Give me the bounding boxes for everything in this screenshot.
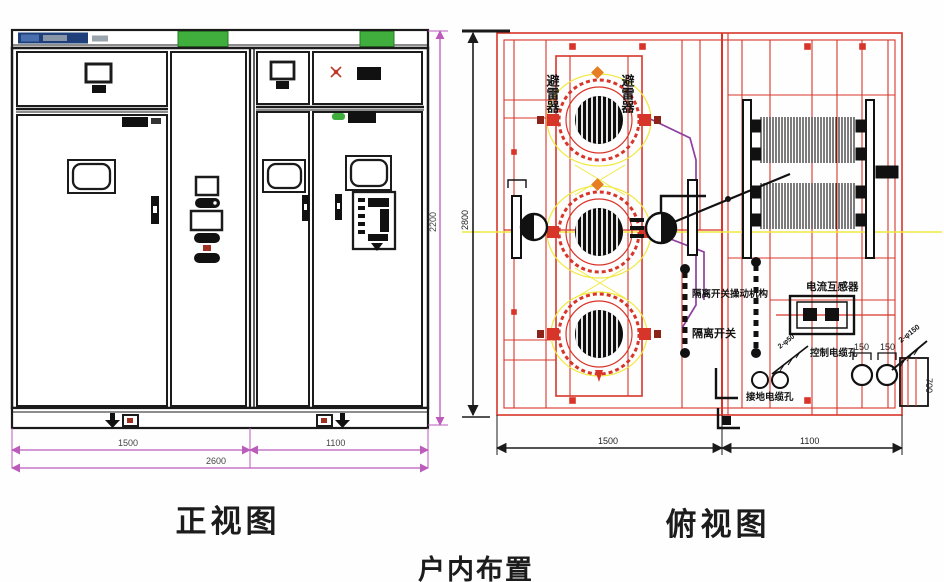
- hole-spec-large-label: 2-φ150: [897, 322, 922, 344]
- cabinet-top-strip: [12, 30, 428, 48]
- dim-front-left-width: 1500: [118, 438, 138, 448]
- plinth-socket-right: [317, 415, 332, 426]
- dim-front-right-width: 1100: [326, 438, 345, 448]
- door-handle-3[interactable]: [335, 194, 342, 220]
- hole-span-left: 150: [854, 342, 869, 352]
- arrester-label-right: 避雷器: [620, 73, 636, 114]
- cable-box-depth: 700: [924, 378, 934, 393]
- current-transformer-label: 电流互感器: [806, 280, 859, 293]
- green-chip: [332, 113, 345, 120]
- hole-spec-small-label: 2-φ50: [777, 333, 796, 350]
- mimic-panel: [353, 192, 395, 251]
- ground-cable-hole-label: 接地电缆孔: [746, 391, 794, 403]
- dim-top-left-width: 1500: [598, 436, 618, 446]
- dim-top-depth: 2800: [460, 210, 470, 230]
- plinth-socket-left: [123, 415, 138, 426]
- drawing-sheet: 1500 1100 2600 2200: [0, 0, 944, 582]
- dim-front-height: 2200: [428, 212, 438, 232]
- top-view-title: 俯视图: [618, 499, 818, 544]
- green-strip-left: [178, 32, 228, 47]
- front-view-drawing: 1500 1100 2600 2200: [0, 0, 472, 490]
- dim-top-right-width: 1100: [800, 436, 819, 446]
- door-label-chip: [122, 117, 148, 127]
- control-cable-hole-label: 控制电缆孔: [810, 347, 858, 359]
- door-handle[interactable]: [151, 196, 159, 224]
- green-strip-right: [360, 32, 394, 47]
- reactor-bank: [743, 100, 898, 258]
- hole-span-right: 150: [880, 342, 895, 352]
- arrester-label-left: 避雷器: [545, 73, 561, 114]
- dim-front-total-width: 2600: [206, 456, 226, 466]
- top-view-drawing: 避雷器 避雷器 隔离开关操动机构 隔离开关 电流互感器 控制电缆孔 接地电缆孔 …: [460, 0, 944, 490]
- door-handle-2[interactable]: [302, 195, 309, 221]
- sheet-caption: 户内布置: [371, 548, 581, 582]
- cabinet-body: [12, 48, 428, 428]
- isolator-switch-label: 隔离开关: [692, 326, 736, 340]
- chain-line: [751, 257, 761, 358]
- switch-mechanism-label: 隔离开关操动机构: [692, 288, 769, 300]
- cable-box: [900, 358, 928, 406]
- front-view-title: 正视图: [128, 496, 328, 541]
